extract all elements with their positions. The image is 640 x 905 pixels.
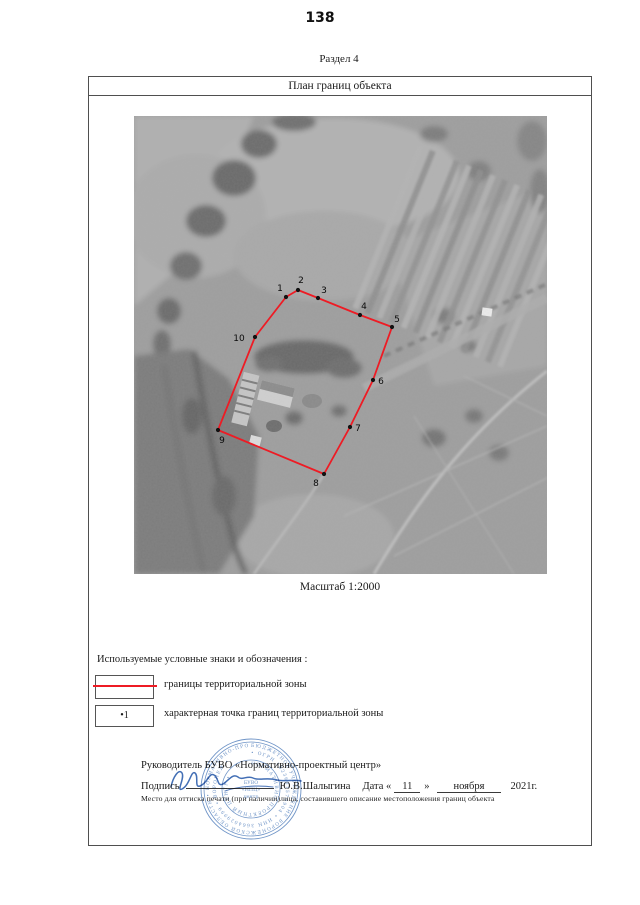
legend-symbol-point: •1: [95, 705, 154, 727]
boundary-point-7: [348, 425, 352, 429]
boundary-point-label-10: 10: [233, 334, 245, 344]
boundary-point-label-9: 9: [219, 436, 225, 446]
legend-title: Используемые условные знаки и обозначени…: [97, 654, 307, 665]
boundary-point-2: [296, 288, 300, 292]
svg-text:центр: центр: [244, 795, 259, 800]
boundary-point-label-7: 7: [355, 424, 361, 434]
boundary-point-label-3: 3: [321, 286, 327, 296]
date-month: ноября: [437, 781, 502, 793]
boundary-point-label-4: 4: [361, 302, 367, 312]
date-quote-close: »: [424, 781, 429, 792]
legend-symbol-boundary: [95, 675, 154, 699]
aerial-map: 12345678910: [134, 116, 547, 574]
boundary-point-10: [253, 335, 257, 339]
handwritten-signature: [167, 765, 307, 795]
aerial-map-svg: 12345678910: [134, 116, 547, 574]
boundary-point-3: [316, 296, 320, 300]
section-label: Раздел 4: [88, 53, 590, 65]
plan-title: План границ объекта: [89, 77, 591, 96]
plan-border-box: План границ объекта: [88, 76, 592, 846]
boundary-point-5: [390, 325, 394, 329]
boundary-point-label-6: 6: [378, 377, 384, 387]
boundary-point-6: [371, 378, 375, 382]
grain-overlay: [134, 116, 547, 574]
boundary-point-4: [358, 313, 362, 317]
date-label: Дата «: [362, 781, 391, 792]
page-number: 138: [0, 10, 640, 26]
boundary-point-8: [322, 472, 326, 476]
boundary-point-1: [284, 295, 288, 299]
boundary-point-label-8: 8: [313, 479, 319, 489]
date-day: 11: [394, 781, 420, 793]
scale-label: Масштаб 1:2000: [89, 581, 591, 593]
date-year: 2021г.: [510, 781, 537, 792]
boundary-line-symbol: [93, 685, 157, 687]
stamp-placement-note: Место для оттиска печати (при наличии)ли…: [141, 794, 495, 803]
legend-label-point: характерная точка границ территориальной…: [164, 708, 383, 719]
legend-label-boundary: границы территориальной зоны: [164, 679, 307, 690]
boundary-point-label-1: 1: [277, 284, 283, 294]
boundary-point-label-2: 2: [298, 276, 304, 286]
boundary-point-9: [216, 428, 220, 432]
boundary-point-label-5: 5: [394, 315, 400, 325]
